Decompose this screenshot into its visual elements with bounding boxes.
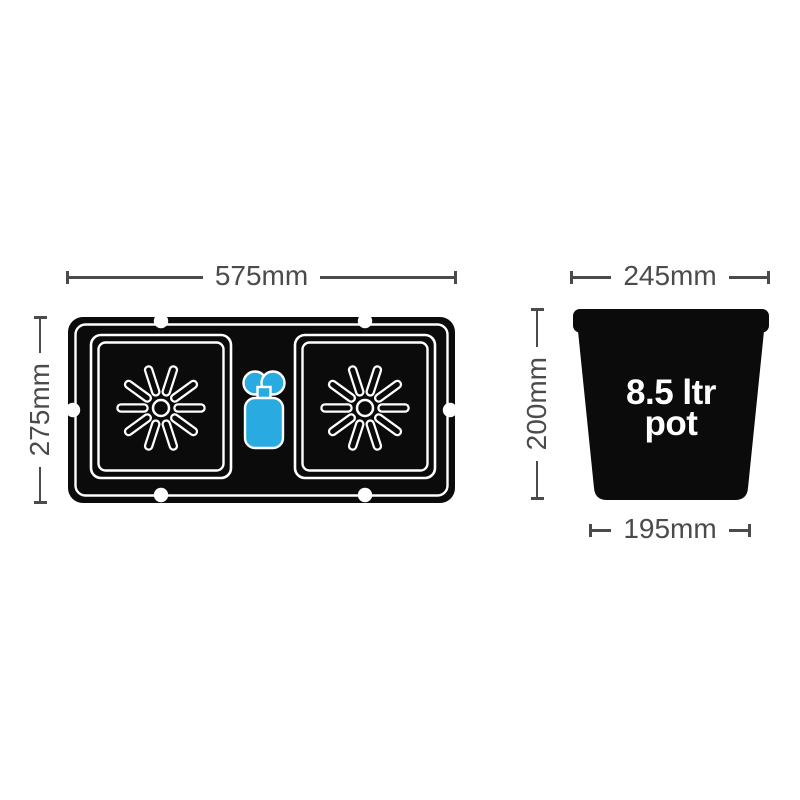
tray-top-view <box>68 317 455 503</box>
grommet-dot-icon <box>154 314 168 328</box>
dimension-line <box>536 461 539 497</box>
tray-height-label: 275mm <box>26 363 54 456</box>
dimension-line <box>573 276 611 279</box>
dimension-endcap <box>34 501 47 504</box>
dimension-line <box>729 529 748 532</box>
pot-bottom-width-label: 195mm <box>623 515 716 543</box>
grommet-dot-icon <box>66 403 80 417</box>
dimension-line <box>320 276 454 279</box>
grommet-dot-icon <box>154 488 168 502</box>
grommet-dot-icon <box>358 314 372 328</box>
pot-capacity-label: 8.5 ltr pot <box>571 377 771 439</box>
pot-top-width-label: 245mm <box>623 262 716 290</box>
dimension-endcap <box>531 497 544 500</box>
dimension-endcap <box>454 271 457 284</box>
dimension-line <box>39 467 42 501</box>
grommet-dot-icon <box>443 403 457 417</box>
dimension-line <box>592 529 611 532</box>
product-dimension-diagram: 575mm 275mm <box>0 0 800 800</box>
tray-width-label: 575mm <box>215 262 308 290</box>
dimension-line <box>729 276 767 279</box>
pot-height-dimension: 200mm <box>524 308 550 500</box>
tray-width-dimension: 575mm <box>66 264 457 291</box>
pot-capacity-line2: pot <box>571 408 771 439</box>
dimension-line <box>39 319 42 353</box>
dimension-line <box>69 276 203 279</box>
pot-height-label: 200mm <box>523 357 551 450</box>
pot-top-width-dimension: 245mm <box>570 264 770 291</box>
pot-bottom-width-dimension: 195mm <box>589 517 751 544</box>
dimension-line <box>536 311 539 347</box>
tray-height-dimension: 275mm <box>27 316 53 504</box>
grommet-dot-icon <box>358 488 372 502</box>
pot-rim <box>573 309 769 333</box>
aquavalve-icon <box>244 372 285 449</box>
dimension-endcap <box>767 271 770 284</box>
dimension-endcap <box>748 524 751 537</box>
